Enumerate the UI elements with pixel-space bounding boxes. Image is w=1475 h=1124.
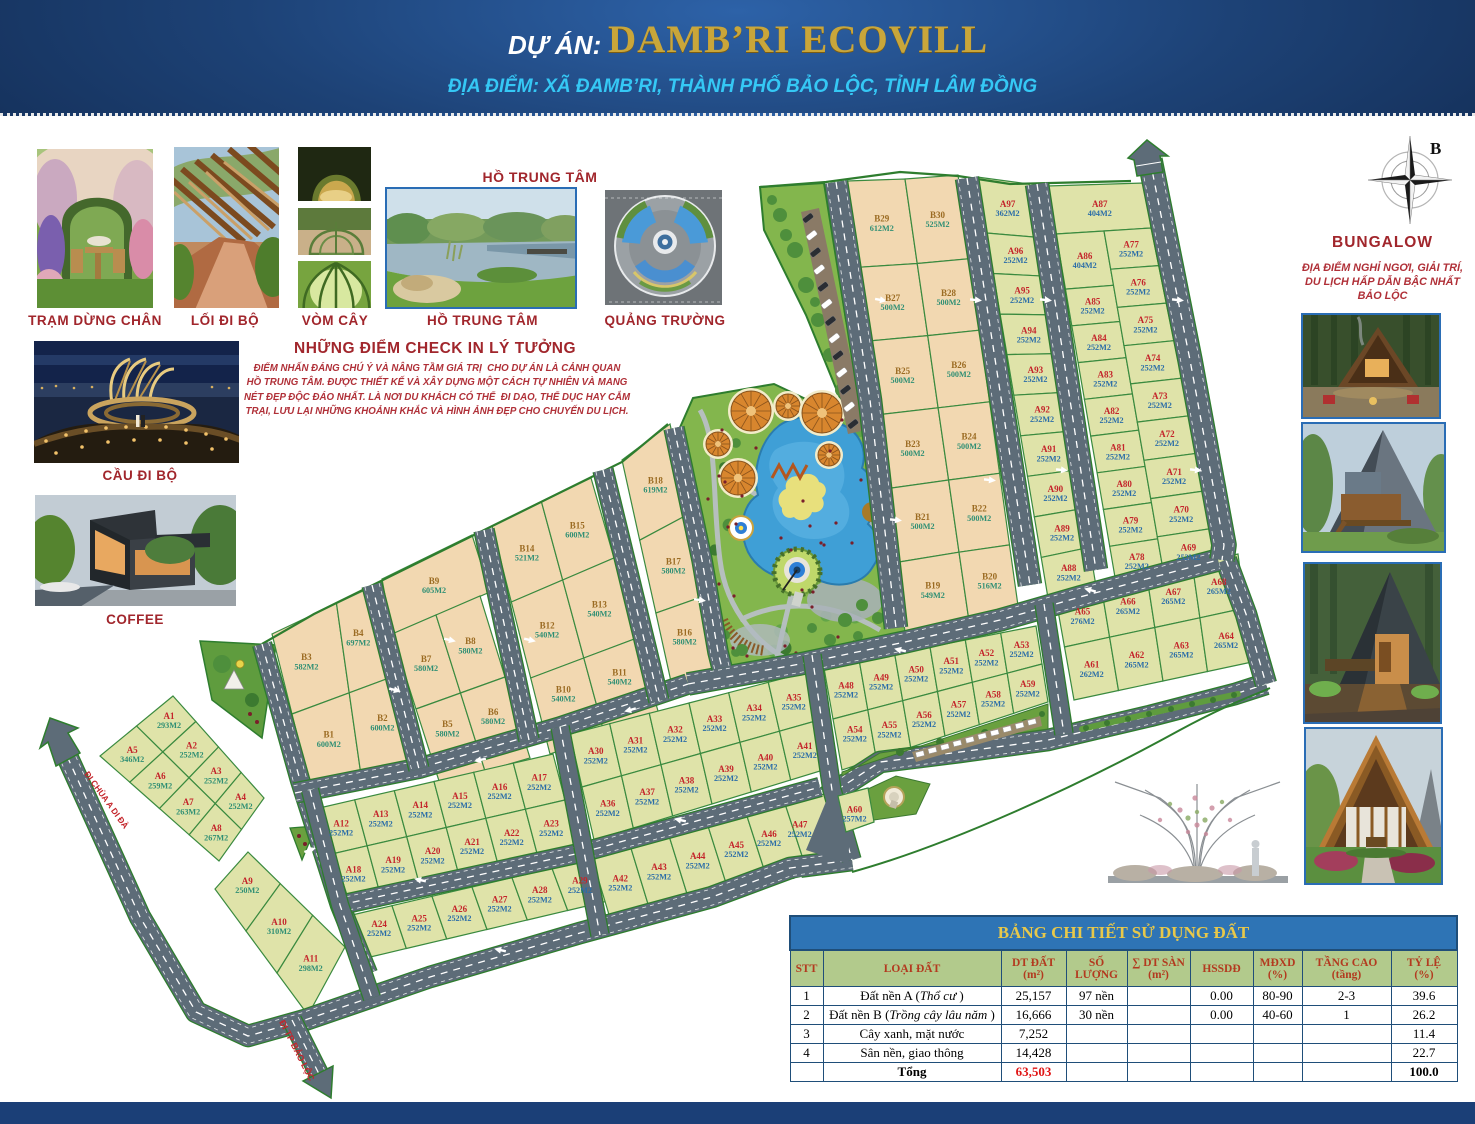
svg-text:B23: B23 (905, 439, 921, 449)
svg-text:A57: A57 (951, 700, 967, 710)
svg-text:500M2: 500M2 (910, 522, 934, 531)
svg-text:A66: A66 (1120, 597, 1136, 607)
svg-text:A12: A12 (333, 818, 349, 828)
svg-text:B22: B22 (972, 504, 988, 514)
svg-text:362M2: 362M2 (996, 209, 1020, 218)
svg-text:252M2: 252M2 (981, 700, 1005, 709)
svg-text:265M2: 265M2 (1124, 660, 1148, 669)
svg-text:A36: A36 (600, 799, 616, 809)
svg-text:252M2: 252M2 (1148, 401, 1172, 410)
svg-text:B2: B2 (377, 713, 388, 723)
svg-text:540M2: 540M2 (551, 695, 575, 704)
svg-text:252M2: 252M2 (460, 847, 484, 856)
svg-text:582M2: 582M2 (294, 662, 318, 671)
svg-text:252M2: 252M2 (1057, 573, 1081, 582)
svg-text:A45: A45 (729, 840, 745, 850)
svg-text:A90: A90 (1048, 484, 1064, 494)
svg-text:A41: A41 (797, 741, 813, 751)
svg-text:540M2: 540M2 (607, 678, 631, 687)
svg-text:252M2: 252M2 (635, 797, 659, 806)
svg-text:293M2: 293M2 (157, 721, 181, 730)
svg-text:252M2: 252M2 (1010, 296, 1034, 305)
svg-text:A55: A55 (882, 720, 898, 730)
svg-text:540M2: 540M2 (535, 631, 559, 640)
svg-text:252M2: 252M2 (1023, 375, 1047, 384)
svg-text:A73: A73 (1152, 391, 1168, 401)
svg-text:B15: B15 (570, 521, 586, 531)
svg-text:B12: B12 (540, 621, 556, 631)
svg-text:A94: A94 (1021, 325, 1037, 335)
svg-text:580M2: 580M2 (435, 730, 459, 739)
svg-text:A50: A50 (908, 664, 924, 674)
svg-text:B16: B16 (677, 628, 693, 638)
svg-text:A96: A96 (1008, 246, 1024, 256)
svg-text:252M2: 252M2 (674, 786, 698, 795)
svg-text:252M2: 252M2 (1043, 494, 1067, 503)
svg-text:252M2: 252M2 (1030, 415, 1054, 424)
svg-text:A10: A10 (271, 917, 287, 927)
svg-text:580M2: 580M2 (661, 567, 685, 576)
svg-text:B26: B26 (951, 360, 967, 370)
svg-text:B6: B6 (488, 707, 499, 717)
svg-text:A44: A44 (690, 851, 706, 861)
svg-text:252M2: 252M2 (539, 829, 563, 838)
svg-text:252M2: 252M2 (834, 691, 858, 700)
svg-text:B4: B4 (353, 628, 364, 638)
svg-text:252M2: 252M2 (742, 713, 766, 722)
svg-text:A59: A59 (1020, 679, 1036, 689)
svg-text:252M2: 252M2 (782, 703, 806, 712)
svg-text:A54: A54 (847, 724, 863, 734)
svg-text:252M2: 252M2 (596, 809, 620, 818)
svg-text:A97: A97 (1000, 199, 1016, 209)
svg-text:252M2: 252M2 (686, 861, 710, 870)
svg-text:259M2: 259M2 (148, 781, 172, 790)
svg-text:252M2: 252M2 (608, 884, 632, 893)
svg-text:252M2: 252M2 (1169, 515, 1193, 524)
svg-text:252M2: 252M2 (1093, 380, 1117, 389)
svg-text:600M2: 600M2 (317, 740, 341, 749)
svg-text:A67: A67 (1166, 587, 1182, 597)
svg-text:A84: A84 (1091, 333, 1107, 343)
svg-text:A26: A26 (452, 904, 468, 914)
svg-text:252M2: 252M2 (367, 929, 391, 938)
svg-text:B1: B1 (324, 730, 335, 740)
svg-text:A71: A71 (1166, 467, 1182, 477)
svg-text:252M2: 252M2 (488, 792, 512, 801)
svg-text:252M2: 252M2 (1119, 250, 1143, 259)
svg-text:B18: B18 (648, 475, 664, 485)
svg-text:697M2: 697M2 (346, 638, 370, 647)
svg-text:252M2: 252M2 (724, 850, 748, 859)
svg-text:252M2: 252M2 (1126, 288, 1150, 297)
svg-text:A20: A20 (425, 846, 441, 856)
svg-text:252M2: 252M2 (1106, 453, 1130, 462)
svg-text:B7: B7 (421, 654, 432, 664)
svg-text:B3: B3 (301, 652, 312, 662)
svg-text:A29: A29 (572, 876, 588, 886)
svg-text:252M2: 252M2 (1112, 489, 1136, 498)
svg-text:265M2: 265M2 (1214, 641, 1238, 650)
svg-text:500M2: 500M2 (947, 370, 971, 379)
svg-text:265M2: 265M2 (1116, 607, 1140, 616)
svg-text:A75: A75 (1138, 315, 1154, 325)
svg-text:A82: A82 (1104, 406, 1120, 416)
svg-text:B20: B20 (982, 571, 998, 581)
svg-text:252M2: 252M2 (1009, 650, 1033, 659)
svg-text:A39: A39 (718, 764, 734, 774)
svg-text:500M2: 500M2 (936, 298, 960, 307)
svg-text:A43: A43 (651, 862, 667, 872)
svg-text:252M2: 252M2 (448, 801, 472, 810)
svg-text:252M2: 252M2 (447, 914, 471, 923)
svg-text:252M2: 252M2 (204, 776, 228, 785)
svg-text:600M2: 600M2 (565, 531, 589, 540)
svg-text:A85: A85 (1085, 296, 1101, 306)
svg-text:A23: A23 (543, 819, 559, 829)
svg-text:252M2: 252M2 (528, 895, 552, 904)
svg-text:250M2: 250M2 (235, 886, 259, 895)
svg-text:257M2: 257M2 (842, 815, 866, 824)
svg-text:A47: A47 (792, 820, 808, 830)
svg-text:A93: A93 (1028, 365, 1044, 375)
svg-text:252M2: 252M2 (421, 856, 445, 865)
svg-text:252M2: 252M2 (1081, 307, 1105, 316)
svg-text:252M2: 252M2 (1133, 325, 1157, 334)
svg-text:525M2: 525M2 (925, 220, 949, 229)
svg-text:B9: B9 (429, 576, 440, 586)
svg-text:B13: B13 (592, 600, 608, 610)
svg-text:A27: A27 (492, 895, 508, 905)
svg-text:A72: A72 (1159, 429, 1175, 439)
svg-text:B25: B25 (895, 366, 911, 376)
svg-text:580M2: 580M2 (672, 638, 696, 647)
svg-text:A9: A9 (242, 876, 253, 886)
svg-text:252M2: 252M2 (1125, 562, 1149, 571)
svg-text:B21: B21 (915, 512, 931, 522)
svg-text:580M2: 580M2 (414, 664, 438, 673)
svg-text:612M2: 612M2 (870, 224, 894, 233)
svg-text:A51: A51 (944, 656, 960, 666)
svg-text:252M2: 252M2 (488, 905, 512, 914)
svg-text:A87: A87 (1092, 199, 1108, 209)
svg-text:252M2: 252M2 (843, 735, 867, 744)
svg-text:500M2: 500M2 (891, 376, 915, 385)
svg-text:252M2: 252M2 (1141, 363, 1165, 372)
svg-text:A30: A30 (588, 746, 604, 756)
svg-text:A80: A80 (1116, 479, 1132, 489)
svg-text:A17: A17 (531, 773, 547, 783)
svg-text:B10: B10 (556, 685, 572, 695)
svg-text:A60: A60 (847, 805, 863, 815)
svg-text:500M2: 500M2 (881, 303, 905, 312)
svg-text:580M2: 580M2 (458, 647, 482, 656)
svg-text:404M2: 404M2 (1073, 261, 1097, 270)
svg-text:B11: B11 (612, 668, 627, 678)
svg-text:B8: B8 (465, 636, 476, 646)
svg-text:A61: A61 (1084, 660, 1100, 670)
svg-text:500M2: 500M2 (967, 514, 991, 523)
svg-text:A83: A83 (1098, 369, 1114, 379)
svg-text:605M2: 605M2 (422, 586, 446, 595)
svg-text:A6: A6 (155, 771, 166, 781)
svg-text:252M2: 252M2 (341, 875, 365, 884)
svg-text:252M2: 252M2 (946, 710, 970, 719)
svg-text:252M2: 252M2 (912, 720, 936, 729)
svg-text:267M2: 267M2 (204, 833, 228, 842)
svg-text:252M2: 252M2 (369, 820, 393, 829)
svg-text:252M2: 252M2 (407, 924, 431, 933)
svg-text:252M2: 252M2 (1017, 336, 1041, 345)
svg-text:580M2: 580M2 (481, 717, 505, 726)
svg-text:A58: A58 (985, 689, 1001, 699)
svg-text:265M2: 265M2 (1169, 651, 1193, 660)
svg-text:252M2: 252M2 (1155, 439, 1179, 448)
svg-text:A92: A92 (1034, 405, 1050, 415)
svg-text:A86: A86 (1077, 251, 1093, 261)
svg-text:A7: A7 (183, 797, 194, 807)
svg-text:A40: A40 (758, 752, 774, 762)
svg-text:252M2: 252M2 (974, 658, 998, 667)
svg-text:252M2: 252M2 (663, 735, 687, 744)
svg-text:252M2: 252M2 (381, 866, 405, 875)
svg-text:A95: A95 (1014, 286, 1030, 296)
svg-text:A33: A33 (707, 714, 723, 724)
svg-text:A49: A49 (873, 672, 889, 682)
svg-text:A91: A91 (1041, 444, 1057, 454)
svg-text:A2: A2 (186, 741, 197, 751)
svg-text:619M2: 619M2 (643, 486, 667, 495)
svg-text:A38: A38 (679, 776, 695, 786)
svg-text:516M2: 516M2 (978, 582, 1002, 591)
svg-text:B5: B5 (442, 719, 453, 729)
svg-text:A19: A19 (385, 855, 401, 865)
svg-text:252M2: 252M2 (1162, 477, 1186, 486)
svg-text:A5: A5 (127, 745, 138, 755)
svg-text:A22: A22 (504, 828, 520, 838)
svg-text:A28: A28 (532, 885, 548, 895)
svg-text:252M2: 252M2 (757, 839, 781, 848)
svg-text:540M2: 540M2 (587, 610, 611, 619)
svg-text:252M2: 252M2 (568, 886, 592, 895)
svg-text:252M2: 252M2 (702, 724, 726, 733)
svg-text:252M2: 252M2 (647, 873, 671, 882)
svg-text:252M2: 252M2 (408, 810, 432, 819)
svg-text:521M2: 521M2 (515, 554, 539, 563)
svg-text:A21: A21 (464, 837, 480, 847)
svg-text:346M2: 346M2 (120, 755, 144, 764)
svg-text:A11: A11 (303, 954, 319, 964)
svg-text:252M2: 252M2 (793, 751, 817, 760)
svg-text:A35: A35 (786, 692, 802, 702)
svg-text:A3: A3 (211, 766, 222, 776)
svg-text:500M2: 500M2 (901, 449, 925, 458)
svg-text:500M2: 500M2 (957, 442, 981, 451)
svg-text:549M2: 549M2 (921, 591, 945, 600)
svg-text:A77: A77 (1123, 239, 1139, 249)
svg-text:404M2: 404M2 (1088, 209, 1112, 218)
svg-text:A16: A16 (492, 782, 508, 792)
svg-text:B30: B30 (930, 210, 946, 220)
svg-text:B14: B14 (519, 544, 535, 554)
svg-text:A79: A79 (1123, 515, 1139, 525)
svg-text:276M2: 276M2 (1070, 617, 1094, 626)
svg-text:A64: A64 (1218, 631, 1234, 641)
svg-text:252M2: 252M2 (1100, 416, 1124, 425)
svg-text:A8: A8 (211, 823, 222, 833)
svg-text:252M2: 252M2 (1050, 534, 1074, 543)
svg-text:252M2: 252M2 (753, 763, 777, 772)
svg-text:252M2: 252M2 (527, 783, 551, 792)
svg-text:A56: A56 (916, 710, 932, 720)
svg-text:B28: B28 (941, 288, 957, 298)
svg-text:A65: A65 (1075, 607, 1091, 617)
svg-text:A74: A74 (1145, 353, 1161, 363)
svg-text:252M2: 252M2 (869, 683, 893, 692)
svg-text:262M2: 262M2 (1080, 670, 1104, 679)
svg-text:B17: B17 (666, 556, 682, 566)
svg-text:252M2: 252M2 (500, 838, 524, 847)
svg-text:A48: A48 (838, 681, 854, 691)
svg-text:600M2: 600M2 (370, 723, 394, 732)
svg-text:B24: B24 (961, 432, 977, 442)
svg-text:265M2: 265M2 (1207, 587, 1231, 596)
svg-text:A37: A37 (639, 787, 655, 797)
svg-text:A69: A69 (1181, 543, 1197, 553)
svg-text:B19: B19 (925, 581, 941, 591)
svg-text:252M2: 252M2 (1118, 526, 1142, 535)
svg-text:252M2: 252M2 (584, 756, 608, 765)
svg-text:A46: A46 (761, 829, 777, 839)
svg-text:310M2: 310M2 (267, 927, 291, 936)
svg-text:B27: B27 (885, 293, 901, 303)
svg-text:298M2: 298M2 (299, 964, 323, 973)
svg-text:265M2: 265M2 (1161, 597, 1185, 606)
svg-text:263M2: 263M2 (176, 807, 200, 816)
svg-text:252M2: 252M2 (1037, 454, 1061, 463)
svg-text:A53: A53 (1014, 640, 1030, 650)
svg-text:A52: A52 (979, 648, 995, 658)
svg-text:A42: A42 (613, 873, 629, 883)
svg-text:A1: A1 (164, 711, 175, 721)
svg-text:252M2: 252M2 (228, 802, 252, 811)
svg-text:A63: A63 (1174, 640, 1190, 650)
svg-text:B29: B29 (874, 214, 890, 224)
svg-text:252M2: 252M2 (1016, 689, 1040, 698)
svg-text:A14: A14 (413, 800, 429, 810)
svg-text:A32: A32 (667, 725, 683, 735)
svg-text:A18: A18 (346, 864, 362, 874)
svg-text:252M2: 252M2 (179, 751, 203, 760)
svg-text:252M2: 252M2 (788, 830, 812, 839)
svg-text:A34: A34 (746, 703, 762, 713)
svg-text:A24: A24 (371, 919, 387, 929)
svg-text:A70: A70 (1173, 505, 1189, 515)
svg-text:252M2: 252M2 (877, 730, 901, 739)
svg-text:A78: A78 (1129, 552, 1145, 562)
svg-text:252M2: 252M2 (623, 746, 647, 755)
svg-text:252M2: 252M2 (939, 666, 963, 675)
svg-text:A15: A15 (452, 791, 468, 801)
svg-text:A89: A89 (1054, 524, 1070, 534)
svg-text:A81: A81 (1110, 442, 1126, 452)
svg-text:A31: A31 (628, 735, 644, 745)
svg-text:252M2: 252M2 (1003, 256, 1027, 265)
svg-text:A4: A4 (235, 792, 246, 802)
svg-text:A88: A88 (1061, 563, 1077, 573)
svg-text:A25: A25 (411, 913, 427, 923)
svg-text:A76: A76 (1130, 277, 1146, 287)
svg-text:A13: A13 (373, 809, 389, 819)
svg-text:252M2: 252M2 (1087, 343, 1111, 352)
svg-text:252M2: 252M2 (1176, 553, 1200, 562)
svg-text:A62: A62 (1129, 650, 1145, 660)
svg-text:252M2: 252M2 (329, 829, 353, 838)
svg-text:252M2: 252M2 (714, 774, 738, 783)
svg-text:A68: A68 (1211, 577, 1227, 587)
svg-text:252M2: 252M2 (904, 675, 928, 684)
